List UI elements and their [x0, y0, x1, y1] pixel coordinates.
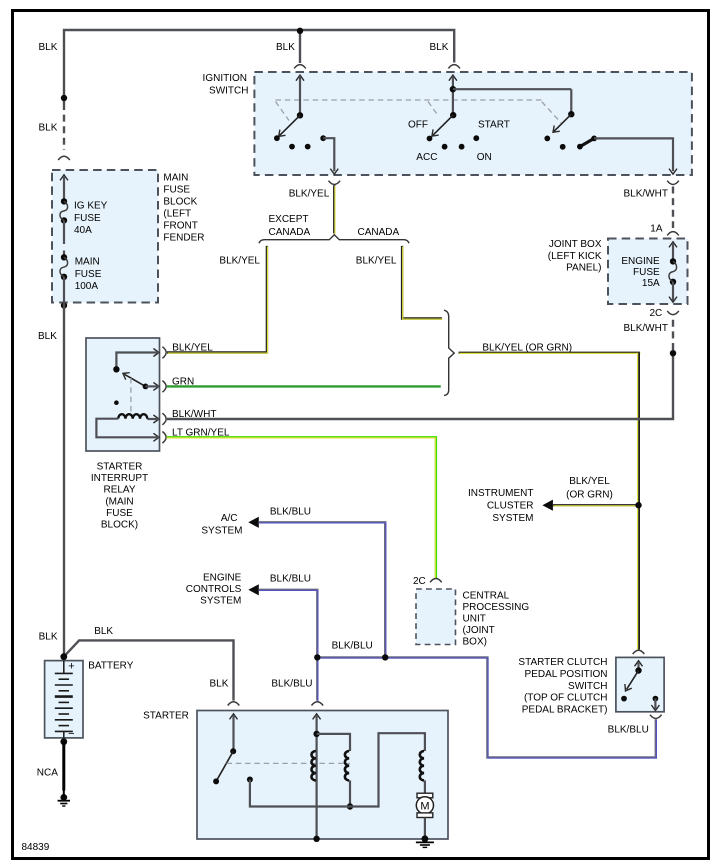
svg-text:2C: 2C [650, 308, 663, 319]
svg-text:SWITCH: SWITCH [209, 86, 248, 97]
svg-text:BLK/WHT: BLK/WHT [624, 189, 668, 200]
svg-text:ON: ON [477, 152, 492, 163]
svg-text:RELAY: RELAY [103, 485, 135, 496]
svg-text:MAIN: MAIN [163, 172, 188, 183]
svg-text:MAIN: MAIN [75, 257, 100, 268]
svg-text:BLOCK: BLOCK [163, 196, 197, 207]
svg-text:BLK/WHT: BLK/WHT [624, 323, 668, 334]
svg-text:JOINT BOX: JOINT BOX [549, 239, 602, 250]
svg-text:BLK: BLK [39, 42, 58, 53]
svg-text:ENGINE: ENGINE [203, 573, 242, 584]
svg-text:IGNITION: IGNITION [203, 73, 247, 84]
svg-text:+: + [68, 660, 74, 672]
svg-text:BLK/YEL: BLK/YEL [356, 255, 397, 266]
svg-text:M: M [420, 800, 429, 812]
svg-text:CANADA: CANADA [358, 227, 400, 238]
svg-text:(LEFT: (LEFT [163, 208, 191, 219]
svg-text:CENTRAL: CENTRAL [463, 590, 510, 601]
svg-text:BLK/YEL: BLK/YEL [172, 343, 213, 354]
svg-text:BLK/YEL: BLK/YEL [219, 255, 260, 266]
svg-text:INTERRUPT: INTERRUPT [91, 473, 148, 484]
svg-text:INSTRUMENT: INSTRUMENT [468, 488, 534, 499]
svg-text:STARTER: STARTER [97, 462, 143, 473]
svg-text:(TOP OF CLUTCH: (TOP OF CLUTCH [524, 693, 608, 704]
svg-text:PEDAL POSITION: PEDAL POSITION [525, 669, 608, 680]
svg-text:UNIT: UNIT [463, 614, 486, 625]
svg-text:BLK/BLU: BLK/BLU [270, 574, 311, 585]
svg-text:(OR GRN): (OR GRN) [566, 489, 613, 500]
svg-text:FUSE: FUSE [75, 269, 102, 280]
svg-text:FENDER: FENDER [163, 233, 204, 244]
svg-text:2C: 2C [413, 576, 426, 587]
svg-text:BLK: BLK [276, 42, 295, 53]
svg-text:(JOINT: (JOINT [463, 625, 495, 636]
svg-text:15A: 15A [642, 278, 660, 289]
svg-text:PEDAL BRACKET): PEDAL BRACKET) [522, 705, 608, 716]
svg-text:ACC: ACC [416, 152, 437, 163]
svg-text:BLK: BLK [430, 42, 449, 53]
svg-text:BLK: BLK [38, 331, 57, 342]
svg-text:BLK: BLK [94, 626, 113, 637]
svg-text:(MAIN: (MAIN [105, 496, 133, 507]
svg-text:FUSE: FUSE [633, 267, 660, 278]
svg-text:STARTER CLUTCH: STARTER CLUTCH [518, 657, 607, 668]
svg-text:BLK: BLK [39, 123, 58, 134]
svg-text:40A: 40A [74, 225, 92, 236]
svg-text:FUSE: FUSE [106, 508, 133, 519]
svg-text:FRONT: FRONT [163, 221, 197, 232]
svg-text:FUSE: FUSE [163, 184, 190, 195]
svg-text:BLK/YEL: BLK/YEL [289, 189, 330, 200]
svg-text:CLUSTER: CLUSTER [487, 501, 534, 512]
svg-text:STARTER: STARTER [143, 711, 189, 722]
svg-text:BLK/BLU: BLK/BLU [270, 506, 311, 517]
svg-text:START: START [478, 120, 510, 131]
svg-text:SYSTEM: SYSTEM [201, 525, 242, 536]
svg-text:−: − [68, 728, 74, 740]
svg-text:100A: 100A [75, 281, 99, 292]
svg-text:BLK/YEL (OR GRN): BLK/YEL (OR GRN) [482, 342, 572, 353]
svg-text:PROCESSING: PROCESSING [463, 602, 530, 613]
svg-text:FUSE: FUSE [74, 213, 101, 224]
svg-text:ENGINE: ENGINE [621, 256, 660, 267]
svg-text:SWITCH: SWITCH [568, 681, 607, 692]
svg-text:EXCEPT: EXCEPT [269, 214, 309, 225]
svg-text:BLK/BLU: BLK/BLU [271, 679, 312, 690]
svg-text:SYSTEM: SYSTEM [492, 513, 533, 524]
svg-text:PANEL): PANEL) [566, 263, 601, 274]
svg-text:IG KEY: IG KEY [74, 201, 108, 212]
svg-text:A/C: A/C [221, 513, 238, 524]
svg-text:NCA: NCA [37, 768, 58, 779]
svg-text:BLK/BLU: BLK/BLU [608, 725, 649, 736]
svg-text:BATTERY: BATTERY [88, 660, 134, 671]
svg-text:BLK: BLK [210, 679, 229, 690]
svg-text:BLOCK): BLOCK) [101, 520, 138, 531]
svg-text:OFF: OFF [408, 120, 428, 131]
svg-text:84839: 84839 [22, 842, 50, 853]
svg-text:BLK/YEL: BLK/YEL [569, 476, 610, 487]
svg-text:CONTROLS: CONTROLS [186, 584, 242, 595]
svg-text:BLK: BLK [39, 632, 58, 643]
svg-text:BLK/BLU: BLK/BLU [332, 641, 373, 652]
svg-text:CANADA: CANADA [269, 227, 311, 238]
svg-text:BOX): BOX) [463, 637, 487, 648]
svg-text:(LEFT KICK: (LEFT KICK [548, 251, 602, 262]
svg-text:1A: 1A [650, 224, 663, 235]
svg-text:SYSTEM: SYSTEM [200, 596, 241, 607]
